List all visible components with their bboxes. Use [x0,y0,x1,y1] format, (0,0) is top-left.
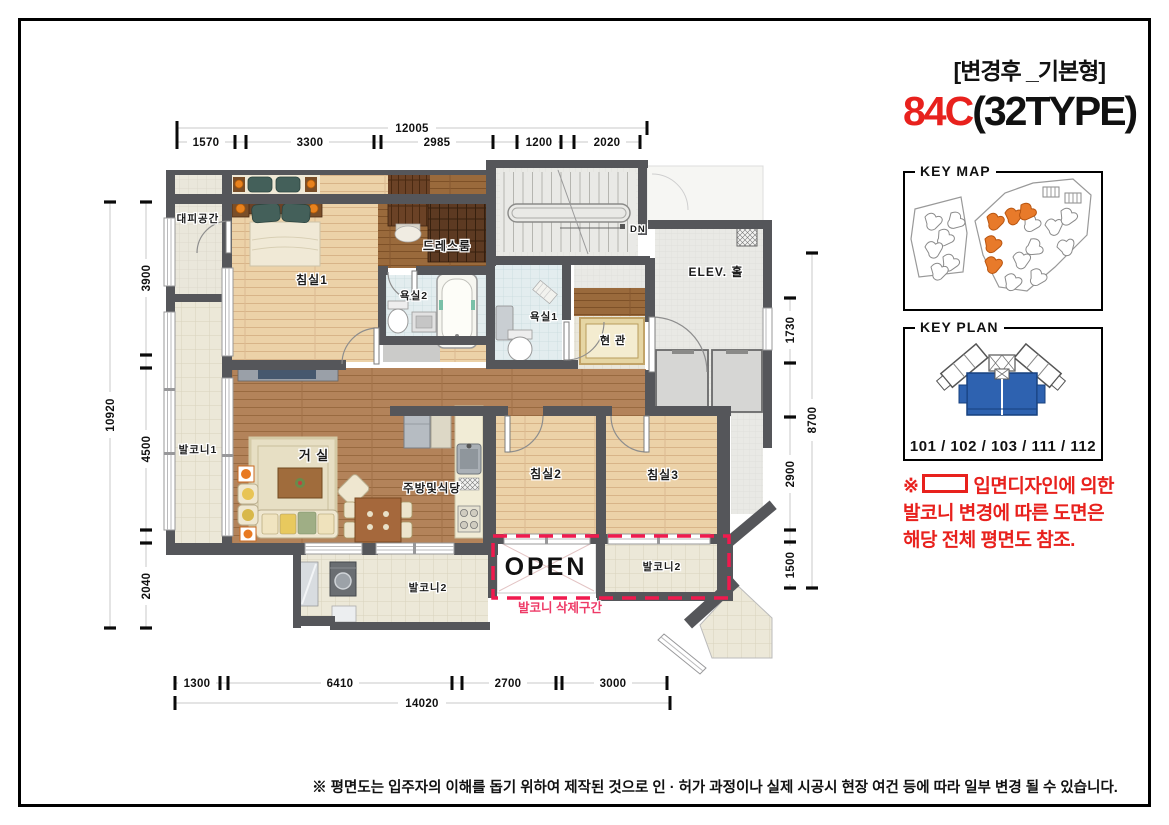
dim-label: 1200 [526,137,553,149]
note-line2: 발코니 변경에 따른 도면은 [903,501,1105,528]
room-label-dressroom: 드레스룸 [423,238,471,253]
dim-label: 3300 [297,137,324,149]
room-label-balcony1: 발코니1 [179,443,218,456]
room-label-bathroom1: 욕실1 [530,310,558,323]
stair-handrail [508,204,630,222]
floor-plan-drawing: 대피공간 침실1 드레스룸 욕실2 욕실1 현 관 ELEV. 홀 DN 발코니… [80,95,820,735]
dim-label: 2900 [785,461,797,488]
room-label-bedroom1: 침실1 [296,272,328,287]
room-label-living: 거 실 [299,448,330,463]
key-plan-graphic [905,329,1101,429]
dim-label: 3900 [141,265,153,292]
dim-label: 8700 [807,407,819,434]
kitchen-counter [455,406,483,538]
unit-code: 84C [903,88,972,134]
floor-plan-page: 대피공간 침실1 드레스룸 욕실2 욕실1 현 관 ELEV. 홀 DN 발코니… [0,0,1169,825]
room-label-entrance: 현 관 [600,333,626,347]
room-label-bathroom2: 욕실2 [400,289,428,302]
dim-label: 1500 [785,552,797,579]
unit-type: (32TYPE) [972,88,1136,134]
vanity [395,226,421,242]
entrance-closet [574,288,645,316]
dim-label: 14020 [405,698,438,710]
key-map-title: KEY MAP [915,163,996,179]
balcony-removed-label: 발코니 삭제구간 [518,600,602,615]
dimension-right: 1730 2900 1500 8700 [783,251,819,589]
revision-tag: [변경후 _기본형] [903,52,1105,86]
note-line3: 해당 전체 평면도 참조. [903,528,1105,555]
room-label-kitchen: 주방및식당 [403,481,461,495]
note-line1: ※입면디자인에 의한 [903,474,1105,501]
unit-numbers: 101 / 102 / 103 / 111 / 112 [905,438,1101,455]
window [376,543,454,554]
room-label-balcony2-left: 발코니2 [409,581,448,594]
dim-label: 2020 [594,137,621,149]
sofa [256,510,338,538]
room-label-bedroom3: 침실3 [647,467,679,482]
dim-label: 1570 [193,137,220,149]
right-panel: [변경후 _기본형] 84C(32TYPE) KEY MAP [903,52,1105,555]
cabinet [431,414,451,448]
window [164,218,175,286]
balcony1-floor [175,302,222,545]
dim-label: 2985 [424,137,451,149]
open-label: OPEN [505,553,588,581]
refrigerator [404,414,430,448]
window [305,543,362,554]
stair-dn-label: DN [630,224,646,235]
dim-label: 1300 [184,678,211,690]
balcony-change-symbol [922,474,968,493]
dim-label: 2700 [495,678,522,690]
balcony2-left-floor [301,553,488,622]
unit-type-title: 84C(32TYPE) [903,88,1105,135]
key-map-box: KEY MAP [903,171,1103,311]
disclaimer: ※ 평면도는 입주자의 이해를 돕기 위하여 제작된 것으로 인 · 허가 과정… [295,776,1135,797]
dimension-bottom: 1300 6410 2700 3000 14020 [174,676,672,710]
room-label-bedroom2: 침실2 [530,466,562,481]
elevator [656,350,708,412]
unit-block-highlighted [959,369,1045,415]
balcony-change-note: ※입면디자인에 의한 발코니 변경에 따른 도면은 해당 전체 평면도 참조. [903,474,1105,555]
room-label-balcony2-right: 발코니2 [643,560,682,573]
window [222,268,233,356]
neighbor-unit-strip [175,175,488,194]
dimension-top: 12005 1570 3300 2985 1200 2020 [176,121,649,149]
toilet [508,330,532,361]
window [763,308,772,350]
room-label-escape-space: 대피공간 [177,212,220,225]
window [658,634,706,674]
stove [458,506,480,532]
room-label-elevator-hall: ELEV. 홀 [689,264,744,279]
dim-label: 6410 [327,678,354,690]
dim-label: 10920 [105,398,117,431]
window [222,378,233,536]
dim-label: 1730 [785,317,797,344]
key-plan-box: KEY PLAN [903,327,1103,461]
sink [412,312,436,332]
window [164,312,175,530]
key-map-graphic [905,173,1101,305]
dim-label: 12005 [395,123,429,135]
key-plan-title: KEY PLAN [915,319,1004,335]
elevator [712,350,762,412]
dimension-left: 10920 3900 4500 2040 [103,200,153,629]
dim-label: 2040 [141,573,153,600]
toilet [388,301,408,333]
dim-label: 4500 [141,436,153,463]
washing-machine [330,562,356,596]
dim-label: 3000 [600,678,627,690]
